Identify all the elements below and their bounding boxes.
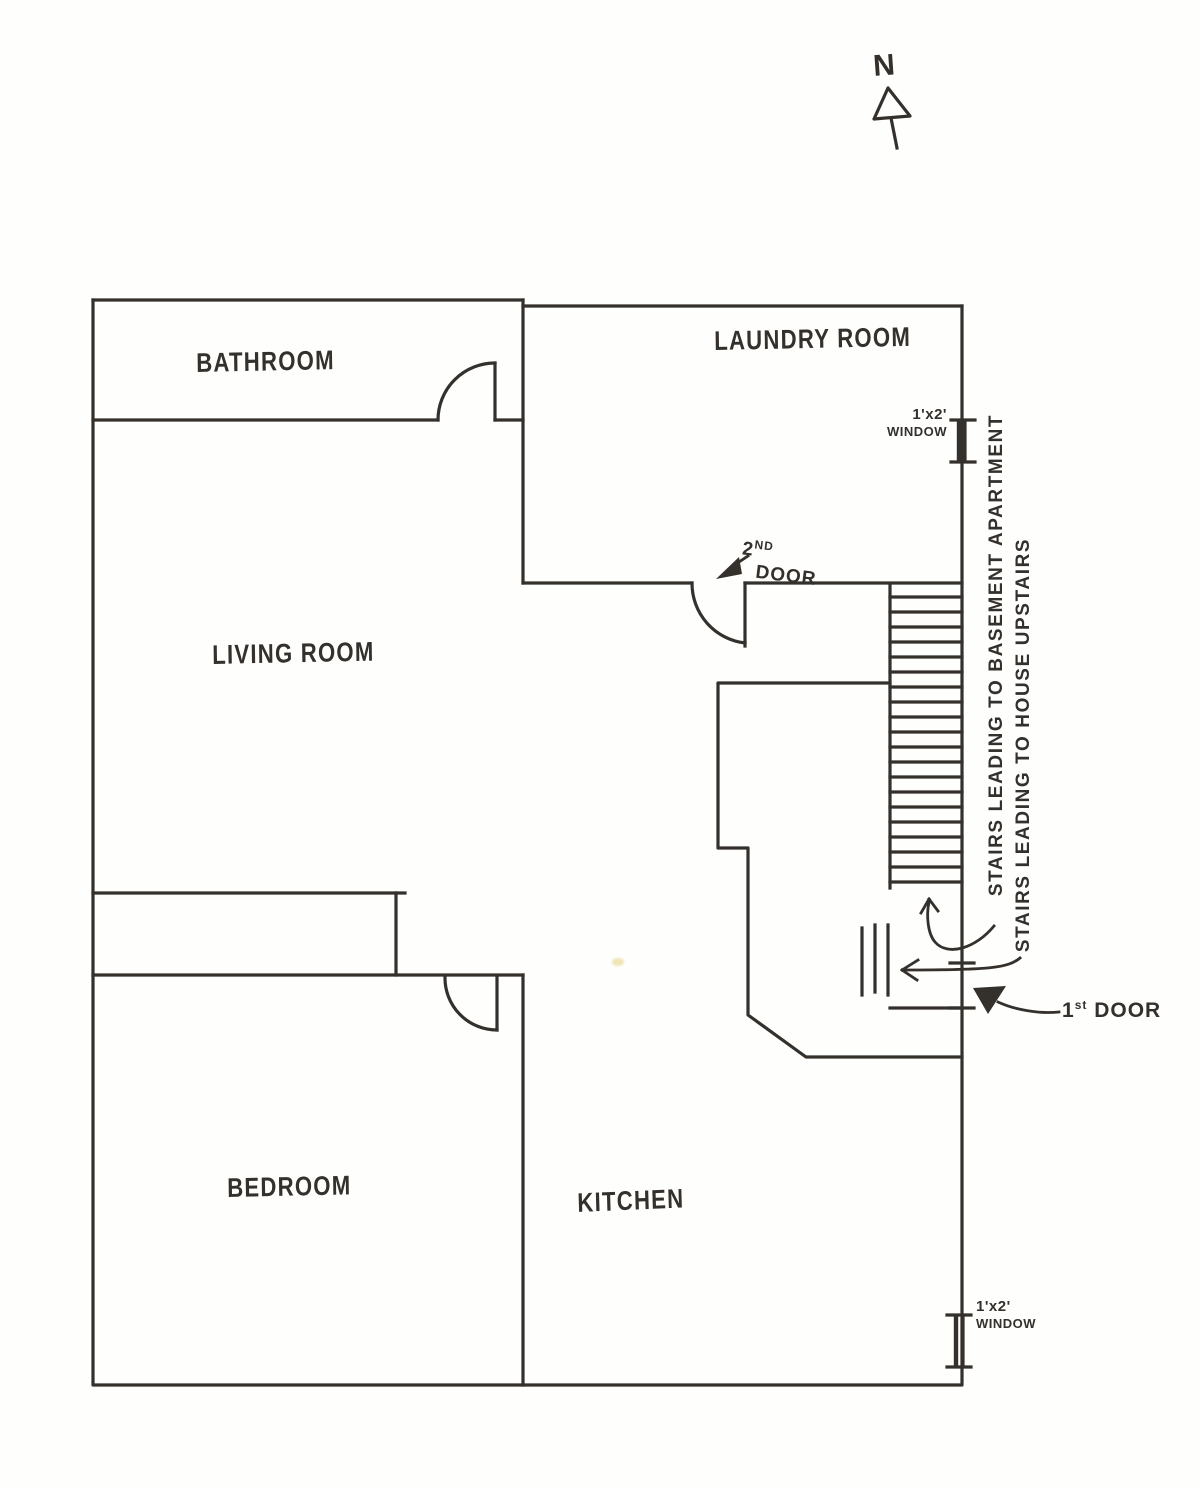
room-label-kitchen: KITCHEN [577, 1183, 685, 1219]
stairs-basement-label: STAIRS LEADING TO BASEMENT APARTMENT [986, 385, 1008, 925]
arrow-up-stairs [921, 899, 994, 949]
stairs-upstairs-label: STAIRS LEADING TO HOUSE UPSTAIRS [1013, 520, 1035, 970]
window-label-top: 1'x2' WINDOW [885, 406, 947, 440]
window-label-bottom: 1'x2' WINDOW [976, 1298, 1036, 1332]
room-label-living: LIVING ROOM [212, 637, 375, 671]
window-top-size: 1'x2' [912, 406, 947, 423]
door-swing-bedroom [445, 977, 497, 1030]
interior-walls [93, 300, 974, 1385]
door-swing-bathroom [438, 363, 495, 420]
first-door-arrow [973, 986, 1059, 1014]
window-bottom-size: 1'x2' [976, 1298, 1011, 1315]
compass-north-label: N [872, 48, 896, 83]
room-label-laundry: LAUNDRY ROOM [714, 322, 911, 357]
second-door-label: 2ND DOOR [738, 536, 820, 591]
window-top-word: WINDOW [887, 424, 947, 439]
first-door-label: 1st DOOR [1062, 998, 1161, 1023]
first-door-num: 1 [1062, 999, 1075, 1022]
railing-marks [862, 925, 888, 995]
window-bottom-word: WINDOW [976, 1316, 1036, 1331]
floor-plan: N BATHROOM LAUNDRY ROOM LIVING ROOM BEDR… [0, 0, 1200, 1490]
room-label-bedroom: BEDROOM [227, 1170, 352, 1204]
outer-walls [93, 300, 962, 1385]
window-symbol-bottom [947, 1315, 971, 1367]
room-label-bathroom: BATHROOM [196, 345, 335, 379]
north-arrow-icon [874, 88, 910, 148]
door-swing-laundry [692, 583, 745, 646]
stairs-steps [890, 597, 962, 882]
second-door-sup: ND [754, 537, 775, 553]
first-door-word: DOOR [1094, 999, 1161, 1022]
first-door-sup: st [1075, 998, 1088, 1012]
stairs [890, 585, 962, 888]
paper-smudge [612, 958, 624, 966]
